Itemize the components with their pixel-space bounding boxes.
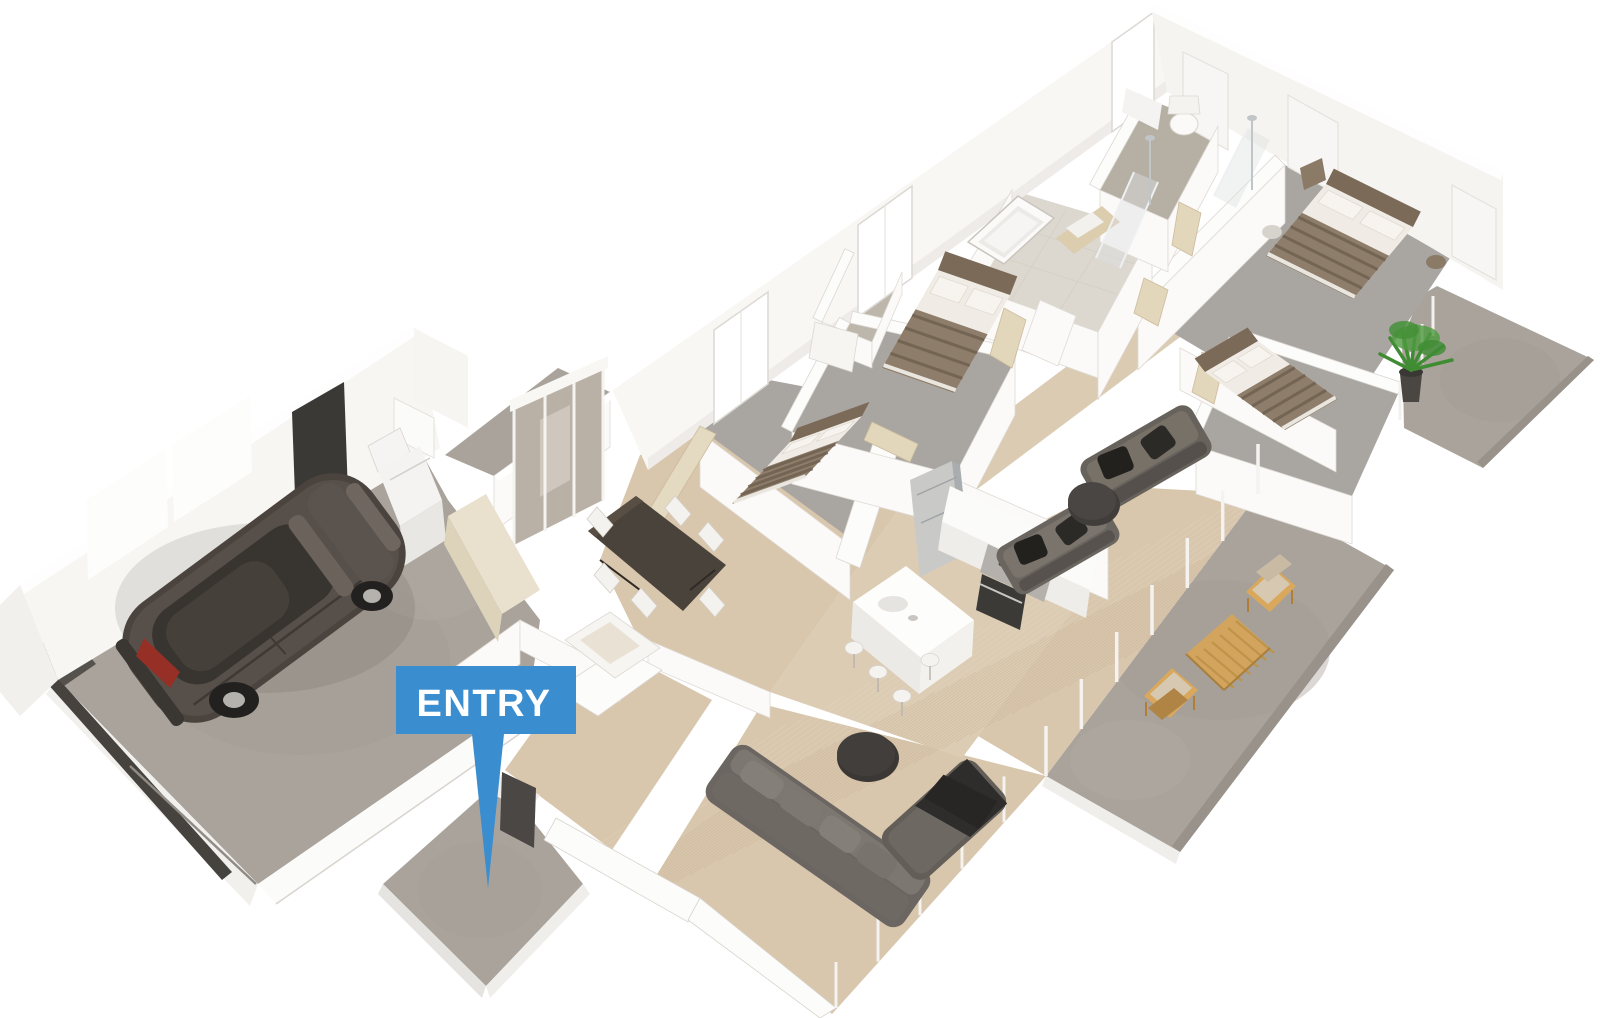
- svg-text:ENTRY: ENTRY: [417, 683, 552, 725]
